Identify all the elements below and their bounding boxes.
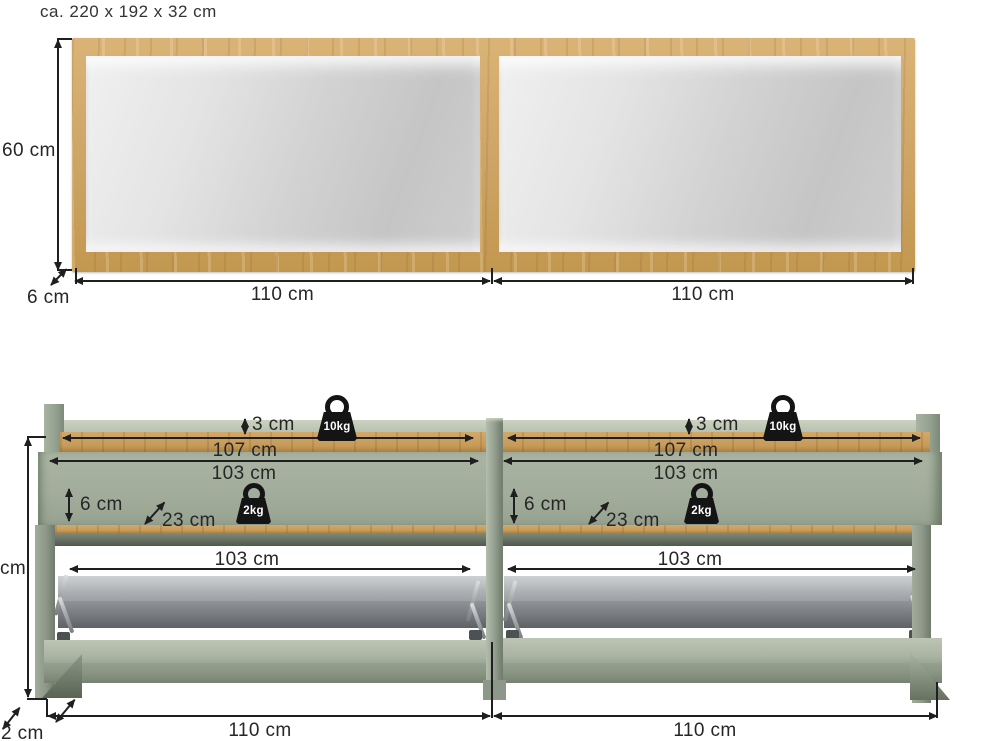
left-flap-tray-lower xyxy=(58,601,486,628)
bench-depth-label-partial: 32 cm xyxy=(0,723,44,741)
right-flap-door xyxy=(492,636,952,704)
right-total-width-label: 110 cm xyxy=(505,720,905,741)
left-rail-edge-dim-arrow xyxy=(244,419,246,434)
right-apron-dim-arrow xyxy=(513,489,515,523)
weight-10kg-icon: 10kg xyxy=(763,395,803,441)
mirror-left-width-dim-line xyxy=(75,280,490,282)
weight-2kg-right-label: 2kg xyxy=(691,505,711,517)
left-flap-door-top-face xyxy=(44,640,492,664)
dim-tick xyxy=(27,698,47,700)
dim-tick xyxy=(491,642,493,718)
right-flap-door-front-face xyxy=(492,663,942,683)
mirror-left-width-label: 110 cm xyxy=(75,284,490,306)
mirror-glass-left xyxy=(86,56,480,252)
left-flap-door-front-face xyxy=(44,663,492,683)
left-rail-edge-label: 3 cm xyxy=(252,414,295,436)
overall-size-title: ca. 220 x 192 x 32 cm xyxy=(40,2,217,22)
bench-underside-shadow xyxy=(55,533,912,546)
right-inner-width-label: 103 cm xyxy=(486,463,886,485)
product-dimension-diagram: ca. 220 x 192 x 32 cm 60 cm 6 cm 110 cm … xyxy=(0,0,984,741)
left-total-width-dim-line xyxy=(48,715,490,717)
bench-height-label-partial: cm xyxy=(0,558,26,580)
left-flap-width-label: 103 cm xyxy=(47,549,447,571)
mirror-frame-thickness-label: 6 cm xyxy=(27,287,70,309)
left-apron-label: 6 cm xyxy=(80,494,123,516)
right-total-width-dim-line xyxy=(494,715,937,717)
mirror-glass-right xyxy=(499,56,901,252)
right-flap-tray-lower xyxy=(504,601,924,628)
weight-2kg-icon: 2kg xyxy=(684,483,719,524)
left-shelf-width-dim-line xyxy=(63,437,473,439)
mirror-right-width-dim-line xyxy=(494,280,913,282)
weight-2kg-icon: 2kg xyxy=(236,483,271,524)
right-depth-label: 23 cm xyxy=(606,510,660,532)
left-total-width-label: 110 cm xyxy=(60,720,460,741)
left-apron-dim-arrow xyxy=(68,489,70,521)
right-rail-edge-label: 3 cm xyxy=(696,414,739,436)
right-flap-tray-upper xyxy=(504,576,924,601)
right-shelf-width-label: 107 cm xyxy=(486,440,886,462)
right-shelf-width-dim-line xyxy=(508,437,920,439)
mirror-height-label: 60 cm xyxy=(2,140,54,162)
hinge-hardware-icon xyxy=(505,578,521,640)
left-shelf-width-label: 107 cm xyxy=(40,440,450,462)
right-flap-width-label: 103 cm xyxy=(490,549,890,571)
hinge-hardware-icon xyxy=(468,578,484,640)
weight-10kg-icon: 10kg xyxy=(317,395,357,441)
hinge-hardware-icon xyxy=(56,572,72,642)
right-rail-edge-dim-arrow xyxy=(688,419,690,434)
mirror-frame-thickness-arrow xyxy=(50,268,67,285)
right-apron-label: 6 cm xyxy=(524,494,567,516)
left-flap-tray-upper xyxy=(58,576,486,601)
right-flap-door-top-face xyxy=(492,638,942,664)
weight-10kg-right-label: 10kg xyxy=(769,421,796,433)
bench-center-post-foot xyxy=(483,680,506,700)
left-flap-door xyxy=(40,638,492,702)
weight-10kg-left-label: 10kg xyxy=(323,421,350,433)
weight-2kg-left-label: 2kg xyxy=(243,505,263,517)
bench-height-dim-line xyxy=(27,438,29,697)
left-inner-width-label: 103 cm xyxy=(40,463,448,485)
left-depth-label: 23 cm xyxy=(162,510,216,532)
mirror-height-dim-line xyxy=(57,40,59,270)
mirror-right-width-label: 110 cm xyxy=(500,284,906,306)
